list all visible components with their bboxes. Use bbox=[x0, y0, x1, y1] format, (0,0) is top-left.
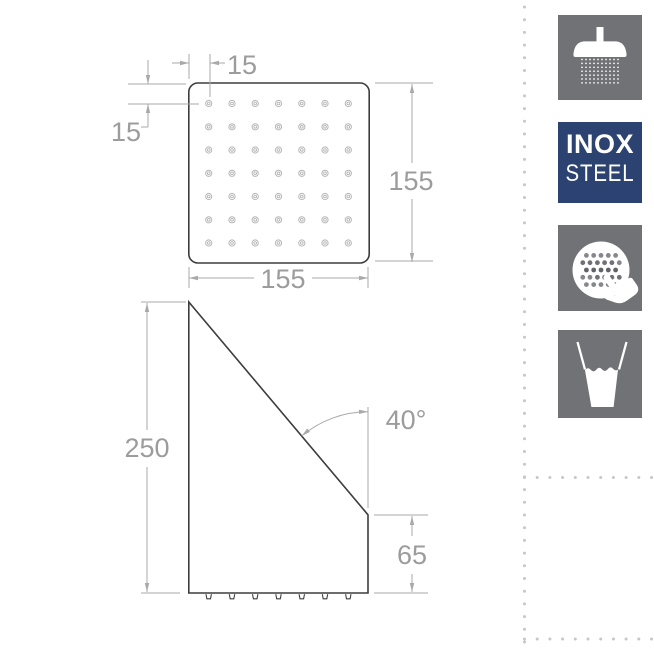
spray-dot bbox=[581, 70, 583, 72]
spray-dot bbox=[589, 70, 591, 72]
dim-label-outlet-depth: 65 bbox=[397, 540, 427, 570]
spray-face-dot bbox=[595, 275, 600, 280]
spray-face-dot bbox=[588, 275, 593, 280]
outlet-nozzle bbox=[206, 594, 211, 599]
spray-dot bbox=[585, 66, 587, 68]
spray-dot bbox=[597, 63, 599, 65]
outlet-nozzle bbox=[276, 594, 281, 599]
spray-face-dot bbox=[599, 282, 604, 287]
spray-dot bbox=[613, 59, 615, 61]
spray-dot bbox=[589, 82, 591, 84]
spray-dot bbox=[617, 78, 619, 80]
technical-drawing: 15 15 155 bbox=[0, 0, 654, 654]
outlet-nozzle-row bbox=[206, 594, 351, 599]
spray-face-dot bbox=[580, 275, 585, 280]
dim-body-height: 250 bbox=[124, 302, 186, 593]
spray-face-dot bbox=[588, 260, 593, 265]
dim-label-spray-angle: 40° bbox=[386, 405, 427, 435]
spray-dot bbox=[593, 70, 595, 72]
spray-face-dot bbox=[617, 275, 622, 280]
dim-plate-height: 155 bbox=[375, 83, 434, 262]
outlet-nozzle bbox=[299, 594, 304, 599]
icon-tile-water-glass bbox=[558, 330, 642, 418]
water-glass-icon bbox=[558, 330, 642, 418]
spray-dot bbox=[613, 74, 615, 76]
spray-dot bbox=[589, 66, 591, 68]
spray-face-dot bbox=[584, 253, 589, 258]
water-spray bbox=[581, 59, 619, 84]
spray-dot bbox=[593, 82, 595, 84]
spray-dot bbox=[593, 78, 595, 80]
spray-dot bbox=[605, 82, 607, 84]
spray-dot bbox=[597, 78, 599, 80]
spray-dot bbox=[605, 63, 607, 65]
spray-dot bbox=[609, 66, 611, 68]
catalog-technical-page: 15 15 155 bbox=[0, 0, 654, 654]
spray-face-dot bbox=[599, 268, 604, 273]
spray-dot bbox=[613, 70, 615, 72]
spray-dot bbox=[617, 59, 619, 61]
side-view: 250 40° 65 bbox=[124, 302, 428, 599]
spray-face-dot bbox=[606, 268, 611, 273]
shower-plate-outline bbox=[189, 83, 369, 263]
spray-dot bbox=[597, 70, 599, 72]
spray-dot bbox=[605, 70, 607, 72]
inox-label: INOX bbox=[558, 131, 642, 158]
spray-dot bbox=[589, 74, 591, 76]
icon-tile-overhead-shower bbox=[558, 15, 642, 100]
spray-dot bbox=[601, 82, 603, 84]
shower-body-outline bbox=[189, 302, 368, 593]
outlet-nozzle bbox=[253, 594, 258, 599]
spray-dot bbox=[593, 63, 595, 65]
dim-label-body-height: 250 bbox=[124, 433, 169, 463]
spray-face-dot bbox=[584, 282, 589, 287]
spray-dot bbox=[601, 59, 603, 61]
outlet-nozzle bbox=[322, 594, 327, 599]
spray-dot bbox=[585, 82, 587, 84]
spray-dot bbox=[601, 78, 603, 80]
spray-dot bbox=[593, 74, 595, 76]
spray-dot bbox=[585, 70, 587, 72]
spray-dot bbox=[581, 66, 583, 68]
spray-dot bbox=[593, 66, 595, 68]
spray-dot bbox=[593, 59, 595, 61]
spray-dot bbox=[581, 59, 583, 61]
spray-dot bbox=[601, 63, 603, 65]
spray-dot bbox=[617, 66, 619, 68]
spray-dot bbox=[617, 82, 619, 84]
spray-dot bbox=[609, 78, 611, 80]
spray-dot bbox=[601, 70, 603, 72]
spray-dot bbox=[601, 66, 603, 68]
spray-dot bbox=[609, 70, 611, 72]
spray-face-dot bbox=[591, 268, 596, 273]
spray-face-dot bbox=[613, 253, 618, 258]
spray-face-dot bbox=[591, 282, 596, 287]
spray-dot bbox=[605, 66, 607, 68]
spray-dot bbox=[581, 63, 583, 65]
spray-face-dot bbox=[610, 260, 615, 265]
spray-dot bbox=[617, 74, 619, 76]
glass-water bbox=[585, 367, 618, 407]
spray-dot bbox=[613, 78, 615, 80]
top-view: 15 15 155 bbox=[111, 50, 434, 294]
spray-dot bbox=[581, 82, 583, 84]
spray-dot bbox=[609, 82, 611, 84]
icon-tile-rub-clean bbox=[558, 225, 642, 311]
spray-dot bbox=[597, 82, 599, 84]
spray-dot bbox=[581, 78, 583, 80]
dim-label-plate-width: 155 bbox=[260, 264, 305, 294]
separators bbox=[525, 7, 654, 651]
spray-dot bbox=[613, 63, 615, 65]
spray-dot bbox=[585, 74, 587, 76]
spray-face-dot bbox=[606, 253, 611, 258]
spray-face-dot bbox=[602, 260, 607, 265]
spray-dot bbox=[617, 63, 619, 65]
spray-dot bbox=[597, 74, 599, 76]
dim-label-left-offset: 15 bbox=[111, 117, 141, 147]
dim-plate-width: 155 bbox=[189, 264, 368, 294]
spray-face-dot bbox=[613, 268, 618, 273]
spray-dot bbox=[605, 59, 607, 61]
spray-dot bbox=[597, 66, 599, 68]
outlet-nozzle bbox=[229, 594, 234, 599]
spray-dot bbox=[589, 78, 591, 80]
spray-face-dot bbox=[591, 253, 596, 258]
overhead-shower-icon bbox=[558, 15, 642, 100]
spray-dot bbox=[613, 66, 615, 68]
spray-dot bbox=[605, 78, 607, 80]
inox-steel-badge: INOX STEEL bbox=[558, 122, 642, 203]
spray-dot bbox=[617, 70, 619, 72]
spray-dot bbox=[585, 78, 587, 80]
spray-dot bbox=[585, 59, 587, 61]
steel-label: STEEL bbox=[564, 162, 635, 186]
spray-face-dot bbox=[617, 260, 622, 265]
spray-face-dot bbox=[584, 268, 589, 273]
spray-dot bbox=[597, 59, 599, 61]
dim-outlet-depth: 65 bbox=[374, 515, 428, 593]
glass-rim-right bbox=[619, 342, 627, 370]
outlet-nozzle bbox=[346, 594, 351, 599]
dim-label-plate-height: 155 bbox=[388, 166, 433, 196]
spray-dot bbox=[609, 74, 611, 76]
spray-dot bbox=[581, 74, 583, 76]
shower-stem bbox=[597, 27, 604, 43]
spray-face-dot bbox=[595, 260, 600, 265]
spray-face-dot bbox=[580, 260, 585, 265]
spray-dot bbox=[589, 63, 591, 65]
dim-label-top-offset: 15 bbox=[227, 50, 257, 80]
rub-clean-spray-face-icon bbox=[558, 225, 642, 311]
spray-face-dot bbox=[599, 253, 604, 258]
spray-dot bbox=[601, 74, 603, 76]
shower-head bbox=[573, 41, 626, 57]
spray-dot bbox=[585, 63, 587, 65]
spray-dot bbox=[605, 74, 607, 76]
spray-dot bbox=[589, 59, 591, 61]
glass-rim-left bbox=[578, 342, 586, 370]
dim-left-offset: 15 bbox=[111, 60, 199, 147]
spray-dot bbox=[609, 63, 611, 65]
spray-dot bbox=[609, 59, 611, 61]
spray-dot bbox=[613, 82, 615, 84]
